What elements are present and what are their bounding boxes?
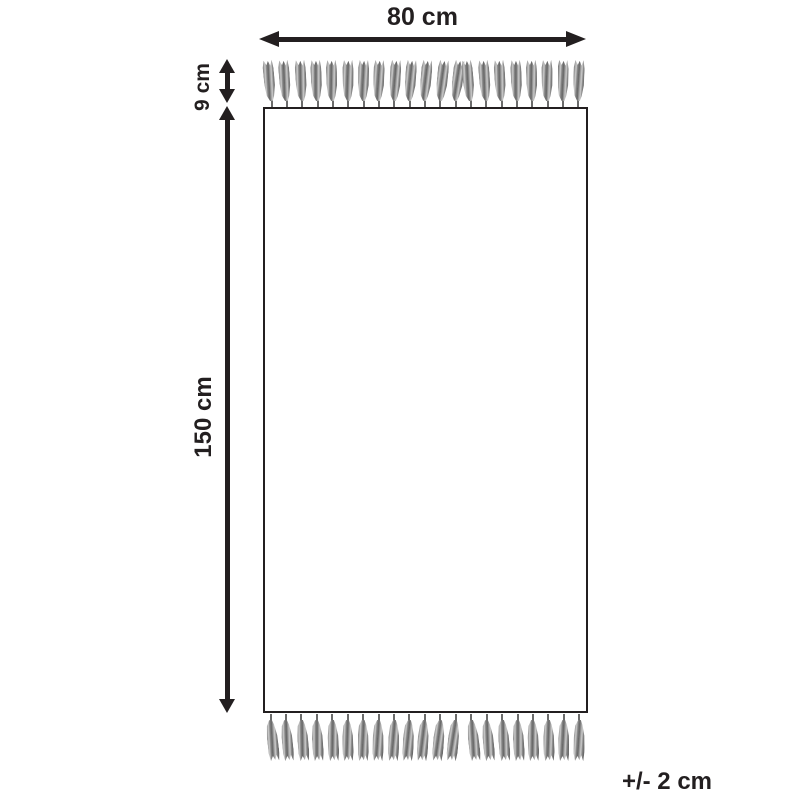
height-dimension-arrow — [219, 106, 235, 713]
tassel-tuft — [497, 720, 511, 762]
tolerance-label: +/- 2 cm — [480, 768, 712, 796]
tassel-tuft — [481, 720, 496, 762]
tassel — [296, 714, 307, 761]
tassel — [342, 714, 353, 761]
tassel — [481, 714, 492, 761]
tassel — [327, 714, 338, 761]
tassel-tuft — [389, 60, 401, 101]
tassel — [527, 60, 538, 107]
tassel-tuft — [280, 720, 295, 762]
tassel — [481, 60, 492, 107]
tassel — [373, 60, 384, 107]
tassel — [527, 714, 538, 761]
tassel — [450, 714, 461, 761]
tassel — [496, 60, 507, 107]
tassel — [343, 60, 354, 107]
tassel — [265, 714, 276, 761]
tassel-tuft — [543, 720, 555, 761]
tassel-tuft — [419, 60, 433, 102]
tassel — [573, 60, 584, 107]
tassel — [558, 714, 569, 761]
tassel — [327, 60, 338, 107]
tassel — [358, 60, 369, 107]
tassel — [558, 60, 569, 107]
tassel-tuft — [404, 60, 417, 102]
tassel-tuft — [342, 720, 354, 761]
top-fringe — [266, 60, 584, 107]
tassel-tuft — [327, 720, 339, 761]
tassel — [266, 60, 277, 107]
tassel-tuft — [294, 60, 308, 102]
tassel-tuft — [466, 719, 481, 761]
tassel-tuft — [512, 720, 525, 762]
tassel-tuft — [358, 720, 369, 761]
tassel-tuft — [558, 60, 569, 101]
tassel — [574, 714, 585, 761]
tassel-tuft — [296, 720, 310, 762]
tassel — [404, 60, 415, 107]
tassel-tuft — [509, 60, 522, 102]
tassel-tuft — [262, 60, 277, 102]
tassel-tuft — [358, 60, 369, 101]
tassel-tuft — [446, 719, 461, 761]
tassel-tuft — [435, 60, 450, 102]
tassel — [435, 714, 446, 761]
tassel-tuft — [477, 60, 492, 102]
tassel-tuft — [558, 720, 569, 761]
tassel-tuft — [265, 719, 280, 761]
tassel-tuft — [373, 60, 385, 101]
tassel-tuft — [525, 60, 537, 101]
tassel-tuft — [461, 60, 476, 102]
arrow-shaft — [225, 71, 230, 91]
tassel-tuft — [493, 60, 507, 102]
tassel — [281, 60, 292, 107]
arrowhead-down-icon — [219, 699, 235, 713]
arrowhead-right-icon — [566, 31, 586, 47]
tassel-tuft — [387, 720, 399, 761]
tassel — [373, 714, 384, 761]
fringe-dimension-arrow — [219, 59, 235, 103]
tassel-tuft — [342, 60, 354, 101]
rug-dimension-diagram: 80 cm 9 cm 150 cm +/- 2 cm — [0, 0, 800, 800]
tassel-tuft — [573, 720, 585, 761]
tassel — [358, 714, 369, 761]
width-dimension-label: 80 cm — [259, 3, 586, 32]
height-dimension-label: 150 cm — [190, 376, 218, 457]
bottom-fringe — [265, 714, 585, 761]
tassel — [419, 714, 430, 761]
width-dimension-arrow — [259, 31, 586, 47]
tassel — [311, 714, 322, 761]
tassel-tuft — [417, 720, 431, 762]
tassel — [435, 60, 446, 107]
tassel — [466, 714, 477, 761]
tassel — [542, 60, 553, 107]
tassel-tuft — [541, 60, 553, 101]
tassel — [497, 714, 508, 761]
arrow-shaft — [225, 118, 230, 701]
tassel — [512, 714, 523, 761]
tassel-tuft — [310, 60, 323, 102]
tassel — [280, 714, 291, 761]
tassel-tuft — [527, 720, 539, 761]
tassel — [543, 714, 554, 761]
tassel — [389, 714, 400, 761]
tassel-tuft — [278, 60, 293, 102]
tassel — [404, 714, 415, 761]
tassel — [465, 60, 476, 107]
tassel — [389, 60, 400, 107]
tassel-tuft — [326, 60, 338, 101]
arrow-shaft — [274, 37, 571, 42]
tassel-tuft — [311, 720, 324, 762]
tassel — [512, 60, 523, 107]
tassel-tuft — [431, 720, 446, 762]
rug-outline — [263, 107, 588, 713]
tassel-tuft — [573, 60, 585, 101]
tassel-tuft — [402, 720, 415, 762]
arrowhead-down-icon — [219, 89, 235, 103]
fringe-dimension-label: 9 cm — [191, 63, 215, 111]
tassel-tuft — [372, 720, 384, 761]
tassel — [419, 60, 430, 107]
tassel — [312, 60, 323, 107]
tassel — [450, 60, 461, 107]
tassel — [297, 60, 308, 107]
